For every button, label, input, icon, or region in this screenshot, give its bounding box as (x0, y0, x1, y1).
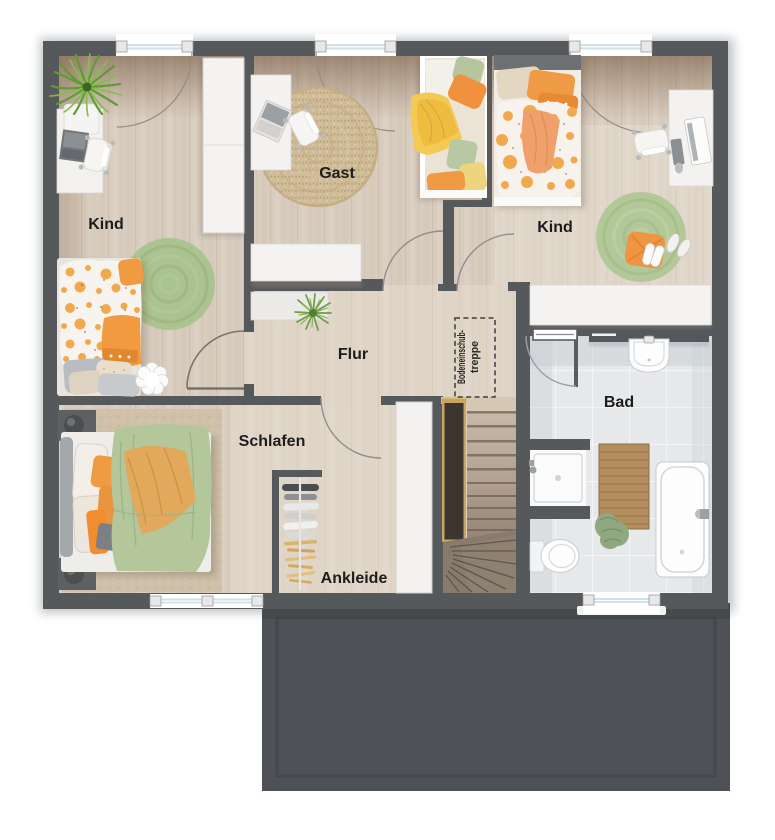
svg-text:Gast: Gast (319, 165, 355, 182)
svg-text:Kind: Kind (88, 216, 124, 233)
svg-text:Kind: Kind (537, 219, 573, 236)
svg-text:Bad: Bad (604, 394, 634, 411)
svg-text:Schlafen: Schlafen (239, 433, 306, 450)
svg-text:Flur: Flur (338, 346, 368, 363)
svg-text:Ankleide: Ankleide (321, 570, 388, 587)
